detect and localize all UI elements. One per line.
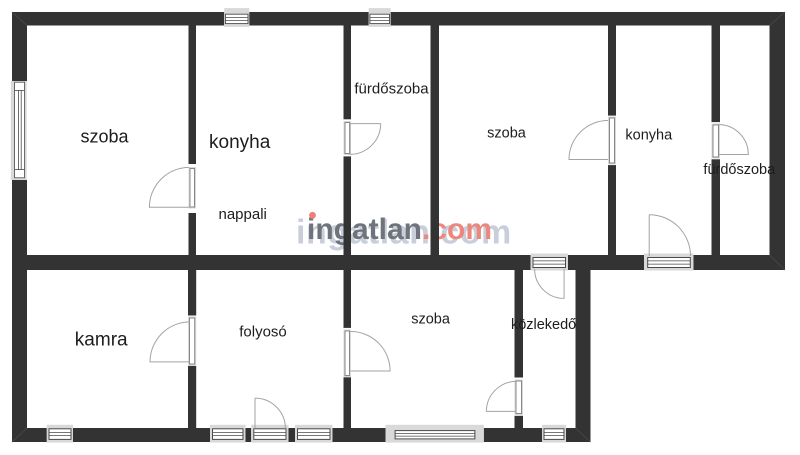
svg-text:fürdőszoba: fürdőszoba: [354, 81, 429, 98]
svg-text:konyha: konyha: [625, 128, 673, 144]
svg-text:kamra: kamra: [75, 330, 128, 351]
svg-text:szoba: szoba: [411, 312, 451, 328]
svg-text:szoba: szoba: [80, 127, 129, 147]
svg-text:közlekedő: közlekedő: [511, 317, 576, 333]
svg-text:fürdőszoba: fürdőszoba: [703, 162, 776, 178]
svg-text:konyha: konyha: [209, 132, 271, 153]
svg-text:nappali: nappali: [219, 206, 267, 223]
svg-text:folyosó: folyosó: [239, 323, 287, 340]
svg-text:ingatlan.com: ingatlan.com: [307, 213, 492, 246]
svg-text:szoba: szoba: [487, 125, 527, 141]
